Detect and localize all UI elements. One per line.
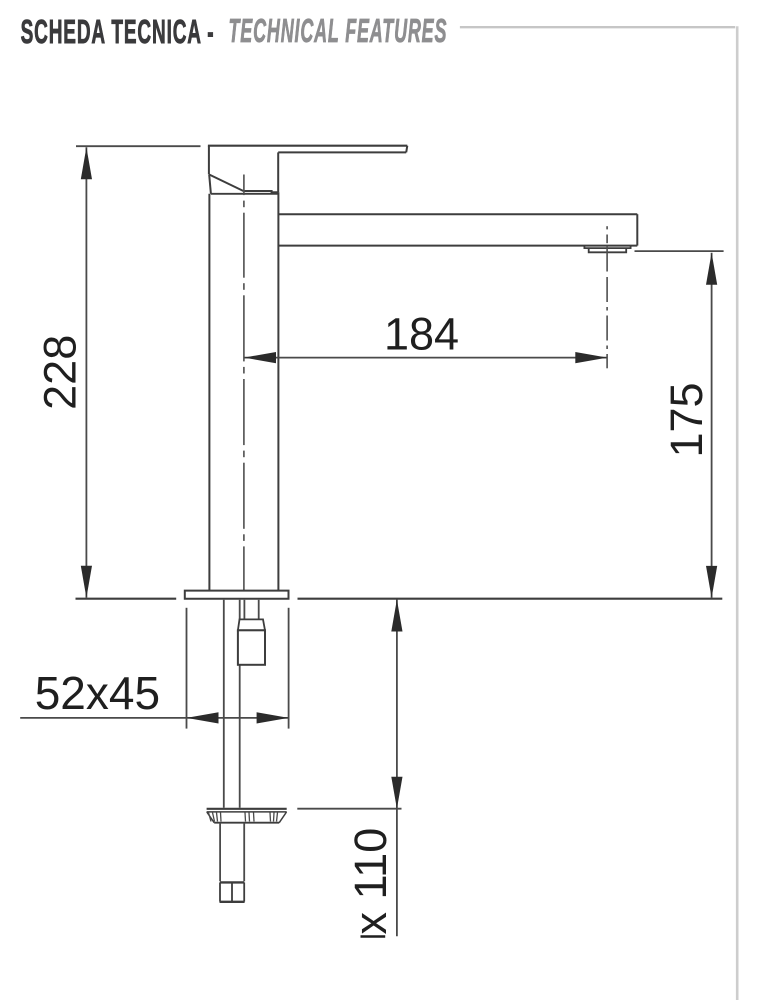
svg-text:228: 228	[35, 335, 86, 410]
svg-text:184: 184	[384, 309, 459, 360]
svg-text:175: 175	[661, 382, 712, 457]
svg-text:SCHEDA TECNICA -: SCHEDA TECNICA -	[21, 14, 215, 51]
svg-text:52x45: 52x45	[35, 667, 160, 719]
svg-text:TECHNICAL FEATURES: TECHNICAL FEATURES	[229, 12, 448, 49]
svg-text:x 110: x 110	[345, 828, 396, 935]
